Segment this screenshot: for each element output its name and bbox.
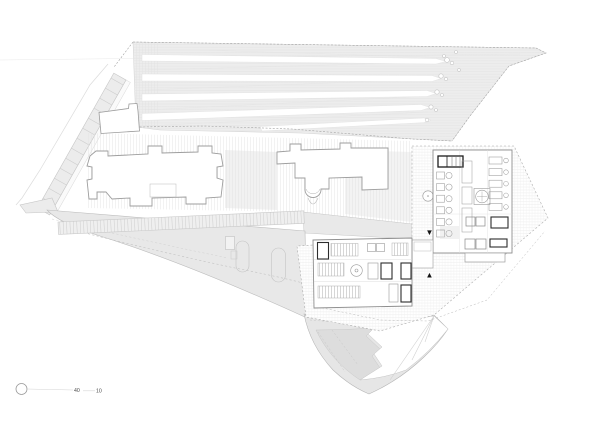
- triangle-down-icon: ▼: [426, 228, 434, 237]
- scale-label-inner: 10: [96, 389, 102, 395]
- slope-small-structure: [226, 237, 235, 250]
- entry-connector: [412, 240, 433, 268]
- terrace-path: [142, 74, 441, 82]
- vineyard-terraces: [0, 42, 546, 141]
- circle-icon: [16, 384, 27, 395]
- winery-wing-lower: [313, 238, 412, 308]
- stair-core: [438, 156, 463, 167]
- site-plan-drawing: ▼ ▲ 40 10: [0, 0, 600, 424]
- hall-stair-hatch: [440, 226, 459, 239]
- scale-bar: 40 10: [16, 384, 102, 395]
- triangle-up-icon: ▲: [426, 271, 434, 280]
- scale-line-outer: [27, 389, 73, 390]
- forecourt-circle-dot: [427, 195, 429, 197]
- scale-label-outer: 40: [74, 388, 80, 394]
- site-plan-canvas: ▼ ▲ 40 10: [0, 0, 600, 424]
- hall-upper-annex: [465, 253, 505, 262]
